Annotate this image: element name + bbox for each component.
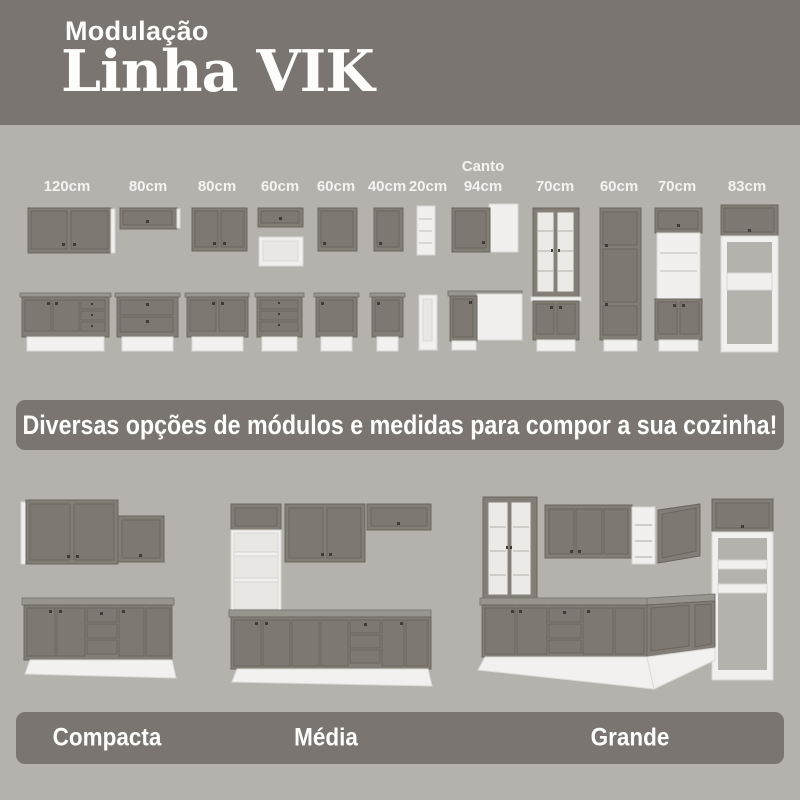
- module-60cm-tall-pantry: [596, 204, 644, 352]
- module-label-60cm-b: 60cm: [310, 154, 362, 196]
- module-label-40cm: 40cm: [364, 154, 410, 196]
- module-80cm-flap-cabinets: [113, 204, 181, 352]
- module-label-canto-94cm: Canto 94cm: [444, 154, 522, 196]
- module-80cm-door-cabinets: [185, 204, 249, 352]
- module-label-60cm-a: 60cm: [252, 154, 308, 196]
- kitchen-media-illustration: [225, 490, 439, 692]
- module-60cm-door-cabinets: [312, 204, 360, 352]
- module-label-70cm-b: 70cm: [648, 154, 706, 196]
- header-band: Modulação Linha VIK: [0, 0, 800, 125]
- module-label-80cm-a: 80cm: [112, 154, 184, 196]
- info-banner-text: Diversas opções de módulos e medidas par…: [23, 410, 778, 441]
- module-label-80cm-b: 80cm: [182, 154, 252, 196]
- module-60cm-flap-niche-cabinets: [254, 204, 306, 352]
- module-70cm-tall-glass-cabinet: [530, 204, 582, 352]
- size-label-grande: Grande: [591, 724, 670, 753]
- module-40cm-cabinets: [368, 204, 408, 352]
- catalog-page: Modulação Linha VIK 120cm 80cm 80cm 60cm…: [0, 0, 800, 800]
- size-bar: Compacta Média Grande: [16, 712, 784, 764]
- module-canto-94cm-cabinets: [446, 200, 524, 352]
- module-83cm-fridge-surround: [718, 200, 780, 352]
- module-label-120cm: 120cm: [22, 154, 112, 196]
- module-label-20cm: 20cm: [408, 154, 448, 196]
- module-label-83cm: 83cm: [714, 154, 780, 196]
- module-label-60cm-c: 60cm: [592, 154, 646, 196]
- page-title: Linha VIK: [61, 42, 374, 102]
- info-banner: Diversas opções de módulos e medidas par…: [16, 400, 784, 450]
- kitchen-compacta-illustration: [18, 492, 178, 684]
- size-label-compacta: Compacta: [53, 724, 162, 753]
- module-120cm-cabinets: [20, 204, 115, 352]
- module-label-70cm-a: 70cm: [526, 154, 584, 196]
- module-70cm-tall-open-cabinet: [652, 204, 704, 352]
- module-20cm-shelf-units: [412, 204, 440, 356]
- kitchen-grande-illustration: [473, 486, 780, 693]
- size-label-media: Média: [294, 724, 358, 753]
